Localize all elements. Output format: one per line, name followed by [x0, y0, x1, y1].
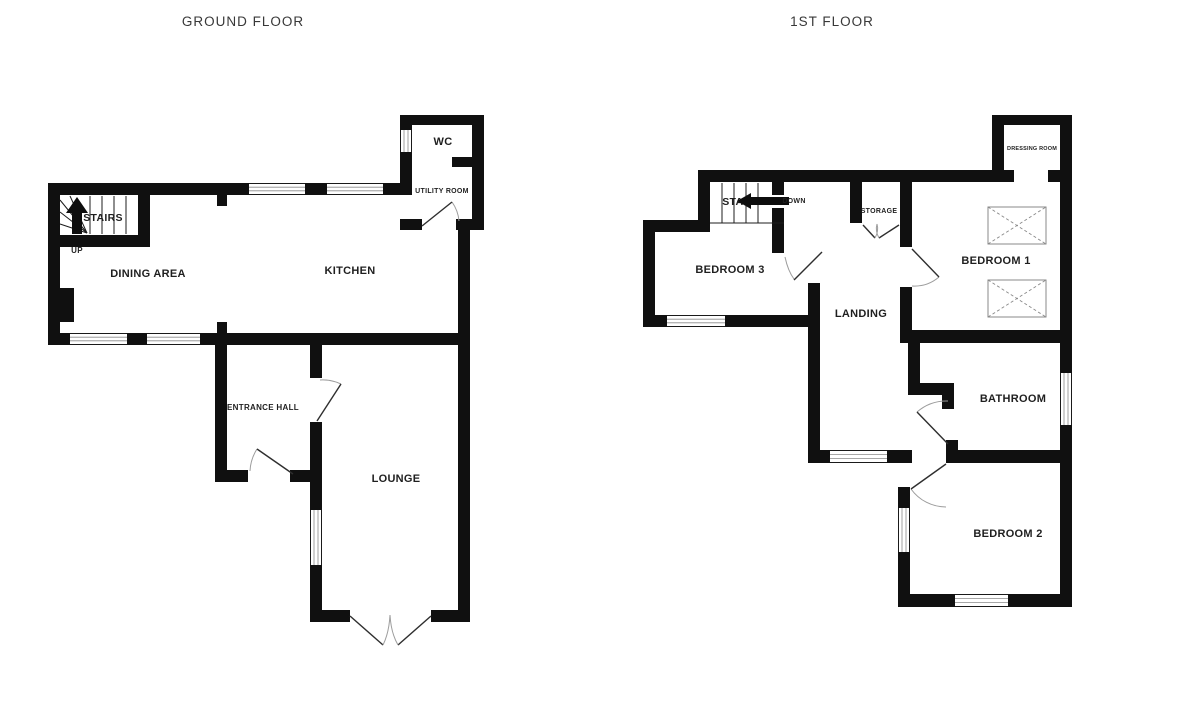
kitchen-window: [249, 183, 305, 195]
front-door: [250, 449, 293, 474]
kitchen-label: KITCHEN: [325, 265, 376, 277]
landing-label: LANDING: [835, 308, 887, 320]
ground-floor-windows: [70, 130, 412, 565]
entrance-hall-label: ENTRANCE HALL: [227, 403, 299, 412]
lounge-french-doors: [350, 615, 431, 645]
down-label: DOWN: [782, 198, 805, 205]
lounge-door: [317, 380, 341, 421]
wc-label: WC: [434, 136, 453, 148]
bathroom-window: [1060, 373, 1072, 425]
bedroom2-door: [911, 464, 946, 507]
dressing-room-label: DRESSING ROOM: [1007, 146, 1057, 152]
wc-window: [400, 130, 412, 152]
bedroom2-bottom-window: [955, 594, 1008, 607]
bedroom3-door: [785, 252, 822, 280]
ground-floor-plan: GROUND FLOOR: [48, 14, 484, 645]
bedroom3-window: [667, 315, 725, 327]
bedroom2-label: BEDROOM 2: [973, 528, 1042, 540]
ground-floor-title: GROUND FLOOR: [182, 14, 304, 29]
dining-window: [147, 333, 200, 345]
crossed-box-symbol: [988, 207, 1046, 244]
crossed-box-symbol: [988, 280, 1046, 317]
storage-label: STORAGE: [861, 208, 898, 215]
first-floor-title: 1ST FLOOR: [790, 14, 874, 29]
bedroom1-label: BEDROOM 1: [961, 255, 1030, 267]
floorplan-svg: GROUND FLOOR: [0, 0, 1200, 727]
first-floor-stairs: STAIRS DOWN: [710, 183, 806, 223]
up-label: UP: [71, 246, 83, 255]
lounge-label: LOUNGE: [372, 473, 421, 485]
floorplan-canvas: GROUND FLOOR: [0, 0, 1200, 727]
bathroom-label: BATHROOM: [980, 393, 1046, 405]
bedroom3-label: BEDROOM 3: [695, 264, 764, 276]
storage-doors: [863, 224, 899, 238]
dining-window: [70, 333, 127, 345]
bedroom2-side-window: [898, 508, 910, 552]
utility-door: [422, 202, 459, 226]
bedroom1-door: [912, 249, 939, 286]
dining-area-label: DINING AREA: [110, 268, 186, 280]
kitchen-window: [327, 183, 383, 195]
lounge-window: [310, 510, 322, 565]
landing-window: [830, 450, 887, 463]
stairs-label: STAIRS: [83, 212, 123, 224]
first-floor-plan: 1ST FLOOR: [643, 14, 1072, 607]
utility-room-label: UTILITY ROOM: [415, 188, 469, 195]
